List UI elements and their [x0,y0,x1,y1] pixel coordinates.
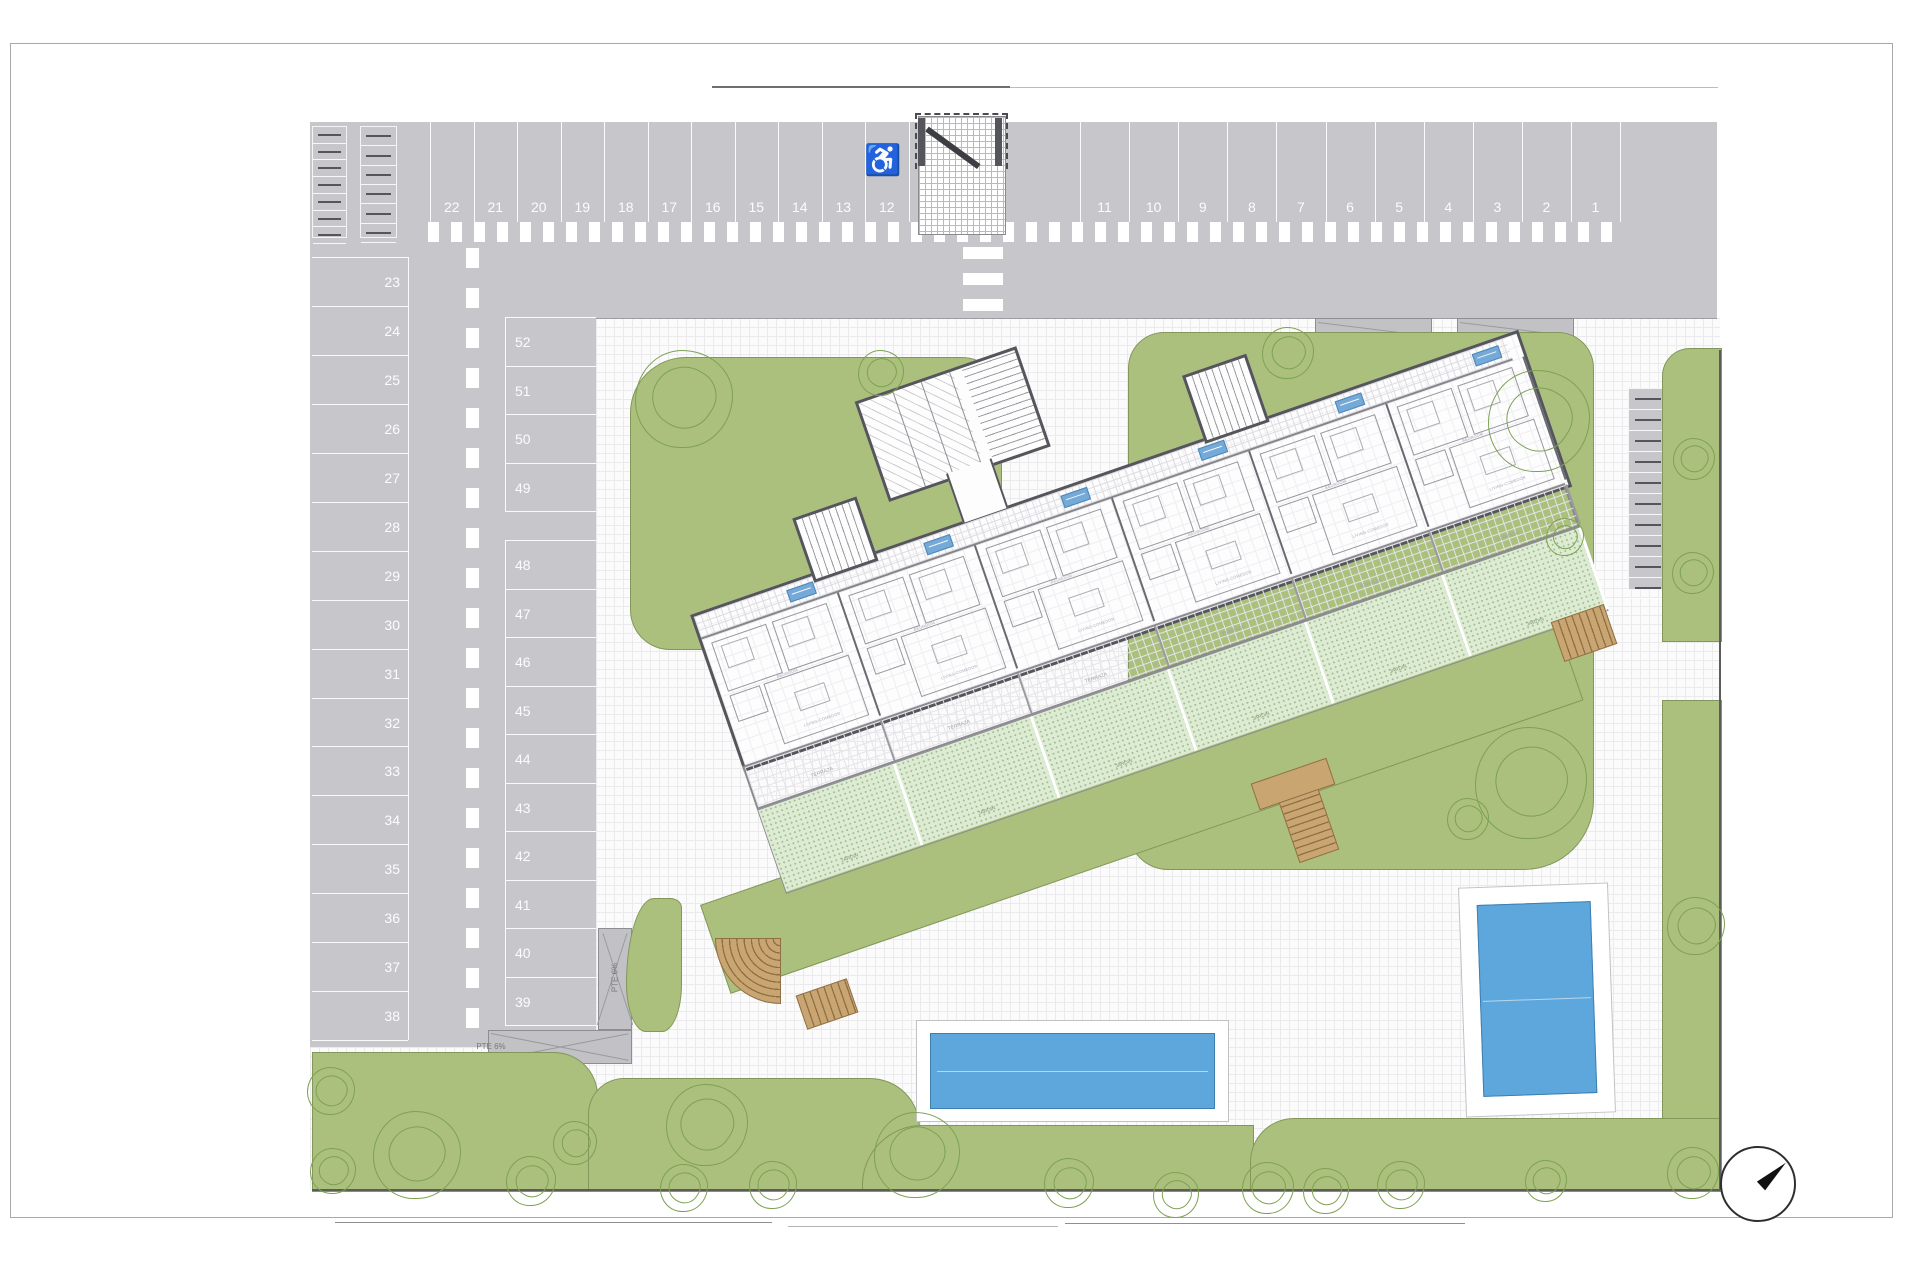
stall-divider [408,257,409,1040]
stall-divider [312,404,408,405]
stall-divider [505,366,596,367]
stall-divider [312,355,408,356]
parking-stall-number: 50 [515,432,585,446]
parking-stall-number: 5 [1375,200,1424,214]
bike-rack-icon [313,211,346,228]
stall-divider [505,463,596,464]
stall-divider [312,991,408,992]
bike-rack-icon [313,144,346,161]
parking-stall-number: 18 [604,200,648,214]
stall-divider [505,734,596,735]
parking-stall-number: 6 [1326,200,1375,214]
parking-stall-number: 33 [312,764,400,778]
parking-stall-number: 13 [822,200,866,214]
parking-stall-number: 20 [517,200,561,214]
parking-stall-number: 40 [515,946,585,960]
bike-rack-group-west-1 [312,126,347,238]
bike-rack-icon [361,127,396,146]
stall-divider [312,942,408,943]
parking-stall-number: 8 [1227,200,1276,214]
wheelchair-icon: ♿ [853,146,913,176]
parking-stall-number: 2 [1522,200,1571,214]
stall-divider [312,893,408,894]
parking-stall-number: 44 [515,752,585,766]
parking-stall-number: 42 [515,849,585,863]
parking-stall-number: 49 [515,481,585,495]
parking-stall-number: 25 [312,373,400,387]
stall-divider [312,551,408,552]
parking-stall-number: 4 [1424,200,1473,214]
parking-stall-number: 16 [691,200,735,214]
bike-rack-icon [313,227,346,244]
bike-rack-icon [361,146,396,165]
parking-stall-number: 43 [515,801,585,815]
parking-stall-number: 51 [515,384,585,398]
parking-stall-number: 35 [312,862,400,876]
stall-divider [505,783,596,784]
stall-divider [505,686,596,687]
parking-stall-number: 45 [515,704,585,718]
parking-stall-number: 9 [1178,200,1227,214]
stall-divider [312,502,408,503]
bike-rack-icon [313,160,346,177]
bike-rack-icon [361,224,396,243]
parking-stall-number: 32 [312,716,400,730]
compass-icon [1720,1146,1796,1222]
stall-divider [312,453,408,454]
stall-divider [505,540,596,541]
bike-rack-icon [313,194,346,211]
parking-stall-number: 34 [312,813,400,827]
booth-wall-left [918,118,925,166]
parking-stall-number: 38 [312,1009,400,1023]
reference-line-bottom-3 [1065,1223,1465,1224]
parking-stall-number: 37 [312,960,400,974]
parking-stall-number: 48 [515,558,585,572]
stall-divider [505,1025,596,1026]
swimming-pool-east [1477,901,1598,1097]
parking-stall-number: 39 [515,995,585,1009]
site-boundary-east [1719,350,1721,1190]
parking-stall-number: 46 [515,655,585,669]
reference-line-top-light [1010,87,1718,88]
bike-rack-icon [313,177,346,194]
stall-divider [312,306,408,307]
lawn-east-upper [1662,348,1722,642]
parking-stall-number: 30 [312,618,400,632]
stall-divider [505,977,596,978]
swimming-pool-main [930,1033,1215,1109]
pedestrian-crossing [963,247,1003,317]
parking-stall-number: 23 [312,275,400,289]
bike-rack-icon [361,204,396,223]
parking-stall-number: 3 [1473,200,1522,214]
reference-line-top-dark [712,86,1010,88]
ramp-label: PTE 6% [461,1042,521,1051]
parking-stall-number: 28 [312,520,400,534]
stall-divider [1620,122,1621,222]
parking-stall-number: 29 [312,569,400,583]
bike-rack-group-west-2 [360,126,397,238]
stall-divider [505,831,596,832]
stall-divider [312,649,408,650]
parking-stall-number: 26 [312,422,400,436]
parking-stall-number: 15 [735,200,779,214]
ramp-label: PTE 6% [611,962,620,994]
parking-stall-number: 1 [1571,200,1620,214]
driveway-centerline [466,248,479,1040]
stall-divider [312,746,408,747]
booth-wall-right [995,118,1002,166]
stall-divider [505,589,596,590]
parking-stall-number: 12 [865,200,909,214]
stall-divider [505,540,506,1025]
reference-line-bottom-2 [788,1226,1058,1227]
stall-divider [505,317,506,511]
stall-divider [312,1040,408,1041]
parking-stall-number: 19 [561,200,605,214]
parking-row-marking [428,222,1620,242]
parking-stall-number: 14 [778,200,822,214]
parking-stall-number: 47 [515,607,585,621]
stall-divider [312,844,408,845]
parking-stall-number: 41 [515,898,585,912]
bike-rack-icon [361,166,396,185]
stall-divider [505,928,596,929]
parking-stall-number: 17 [648,200,692,214]
stall-divider [505,880,596,881]
compass-needle-icon [1757,1158,1790,1190]
stall-divider [505,414,596,415]
stall-divider [312,600,408,601]
parking-stall-number: 52 [515,335,585,349]
stall-divider [312,257,408,258]
parking-stall-number: 10 [1129,200,1178,214]
parking-stall-number: 24 [312,324,400,338]
stall-divider [505,511,596,512]
stall-divider [312,698,408,699]
reference-line-bottom-1 [335,1222,772,1223]
site-plan: 22212019181716151413121110987654321♿ 232… [0,0,1920,1280]
stall-divider [312,795,408,796]
parking-stall-number: 36 [312,911,400,925]
parking-stall-number: 7 [1276,200,1325,214]
bike-rack-icon [313,127,346,144]
stall-divider [505,317,596,318]
parking-stall-number: 27 [312,471,400,485]
parking-stall-number: 31 [312,667,400,681]
bike-rack-icon [361,185,396,204]
parking-stall-number: 11 [1080,200,1129,214]
parking-stall-number: 22 [430,200,474,214]
stall-divider [505,637,596,638]
parking-stall-number: 21 [474,200,518,214]
